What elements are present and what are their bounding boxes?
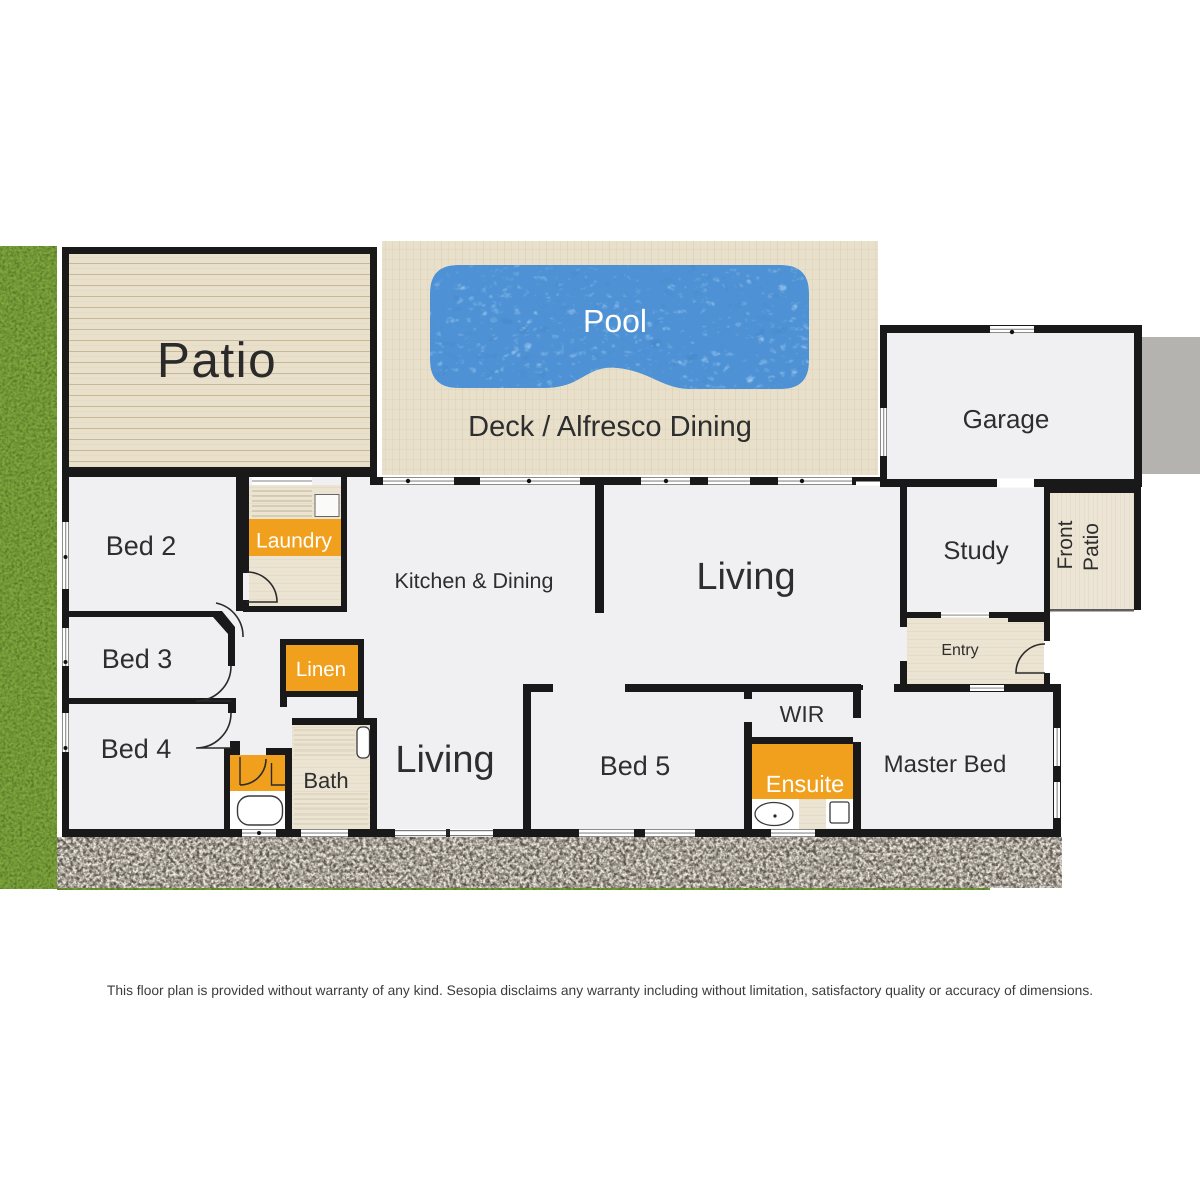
svg-text:Master Bed: Master Bed — [884, 751, 1007, 778]
svg-text:Patio: Patio — [157, 333, 277, 388]
svg-text:Front: Front — [1054, 520, 1077, 569]
svg-text:Study: Study — [943, 537, 1008, 565]
svg-text:Bed 4: Bed 4 — [101, 734, 172, 764]
svg-text:Bed 3: Bed 3 — [102, 644, 173, 674]
svg-text:Bath: Bath — [303, 768, 348, 793]
svg-text:Garage: Garage — [963, 404, 1050, 434]
svg-text:Living: Living — [395, 739, 494, 781]
svg-text:WIR: WIR — [780, 701, 825, 727]
svg-text:Patio: Patio — [1080, 523, 1103, 571]
svg-text:Kitchen & Dining: Kitchen & Dining — [395, 569, 554, 593]
svg-text:Pool: Pool — [583, 303, 647, 339]
svg-text:Ensuite: Ensuite — [766, 771, 844, 797]
svg-text:Entry: Entry — [941, 642, 978, 659]
svg-text:This floor plan is provided wi: This floor plan is provided without warr… — [107, 983, 1093, 998]
svg-text:Bed 5: Bed 5 — [600, 751, 671, 781]
svg-text:Laundry: Laundry — [256, 530, 332, 553]
svg-text:Linen: Linen — [296, 658, 346, 681]
svg-text:Bed 2: Bed 2 — [106, 531, 177, 561]
svg-text:Living: Living — [696, 556, 795, 598]
svg-text:Deck / Alfresco Dining: Deck / Alfresco Dining — [468, 411, 752, 443]
